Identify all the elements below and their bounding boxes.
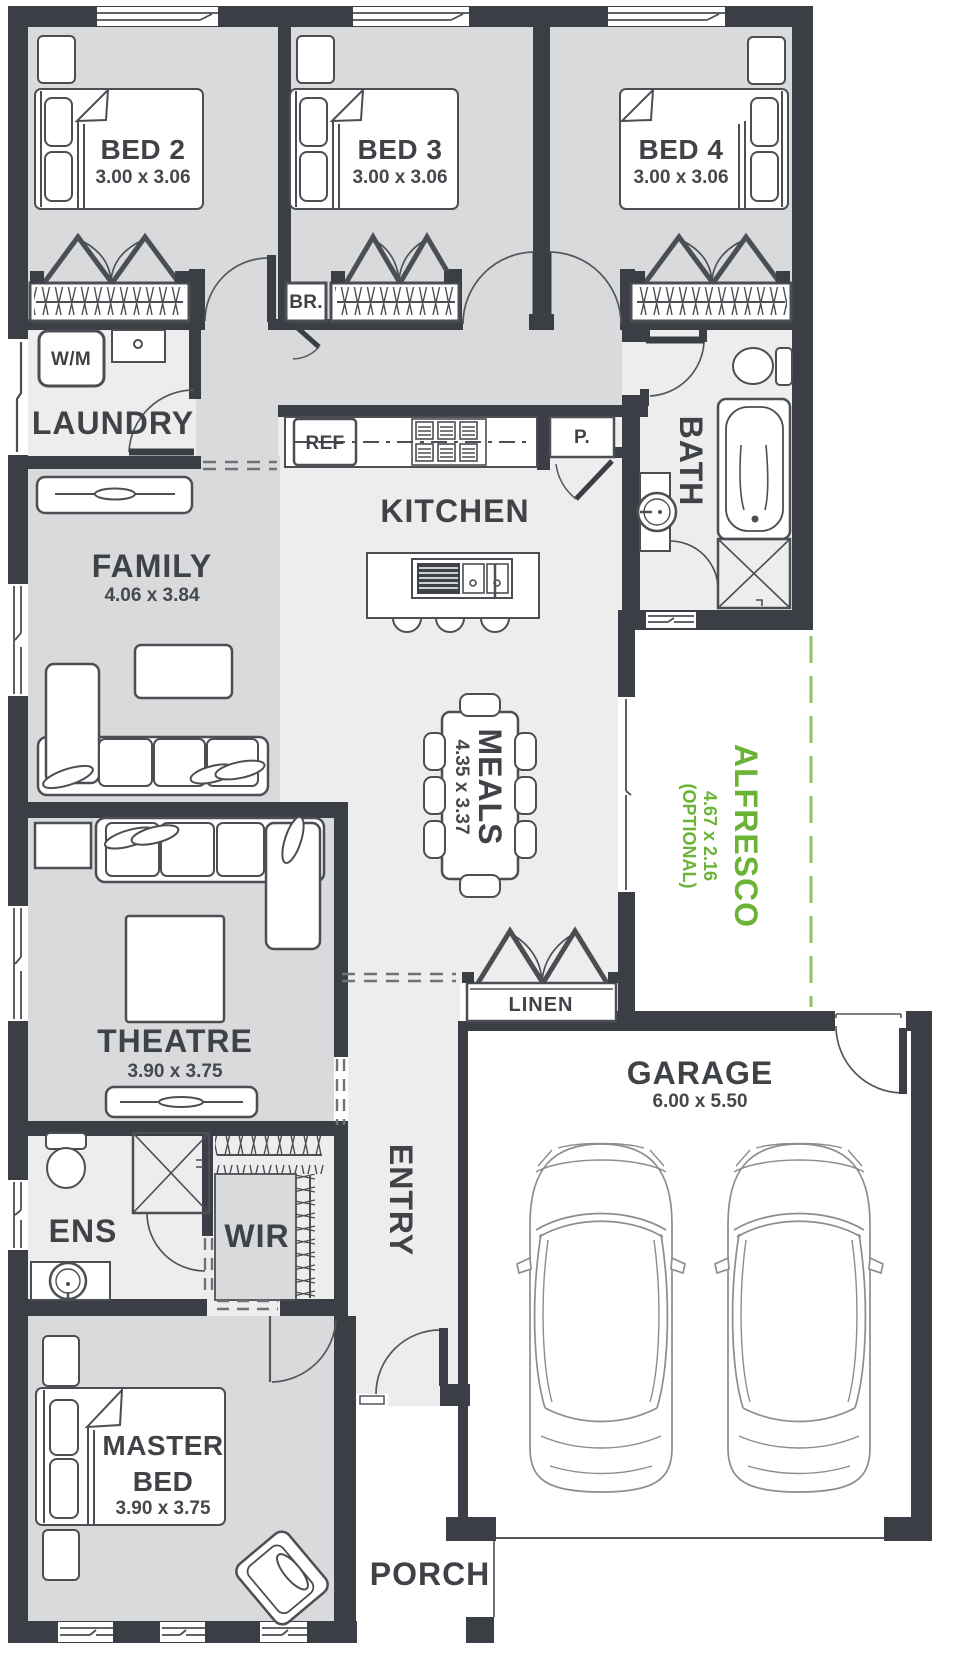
svg-text:BED 3: BED 3 [358, 134, 443, 165]
svg-text:ENS: ENS [49, 1213, 118, 1249]
svg-text:BR.: BR. [289, 292, 323, 313]
svg-text:LAUNDRY: LAUNDRY [32, 405, 194, 441]
svg-text:6.00 x 5.50: 6.00 x 5.50 [652, 1091, 747, 1112]
svg-text:BED 2: BED 2 [101, 134, 186, 165]
svg-text:4.35 x 3.37: 4.35 x 3.37 [451, 739, 472, 834]
svg-text:MEALS: MEALS [472, 729, 508, 846]
svg-text:REF: REF [306, 433, 345, 454]
svg-text:3.00 x 3.06: 3.00 x 3.06 [633, 167, 728, 188]
svg-text:3.00 x 3.06: 3.00 x 3.06 [352, 167, 447, 188]
svg-text:3.90 x 3.75: 3.90 x 3.75 [115, 1498, 211, 1519]
svg-text:PORCH: PORCH [370, 1556, 491, 1592]
svg-text:KITCHEN: KITCHEN [380, 493, 529, 529]
svg-text:ENTRY: ENTRY [383, 1144, 419, 1256]
svg-text:BED: BED [133, 1466, 194, 1497]
svg-text:(OPTIONAL): (OPTIONAL) [679, 784, 699, 889]
svg-text:WIR: WIR [224, 1218, 289, 1254]
svg-text:BED 4: BED 4 [639, 134, 724, 165]
svg-text:BATH: BATH [673, 416, 709, 507]
svg-text:THEATRE: THEATRE [97, 1023, 253, 1059]
svg-text:FAMILY: FAMILY [92, 548, 212, 584]
svg-text:W/M: W/M [51, 349, 91, 370]
svg-text:P.: P. [574, 427, 590, 448]
svg-text:3.90 x 3.75: 3.90 x 3.75 [127, 1061, 223, 1082]
svg-text:4.06 x 3.84: 4.06 x 3.84 [104, 585, 200, 606]
svg-text:4.67 x 2.16: 4.67 x 2.16 [700, 791, 720, 881]
svg-text:GARAGE: GARAGE [627, 1055, 773, 1091]
svg-text:3.00 x 3.06: 3.00 x 3.06 [95, 167, 190, 188]
svg-text:ALFRESCO: ALFRESCO [728, 744, 764, 928]
svg-text:LINEN: LINEN [509, 994, 574, 1016]
svg-text:MASTER: MASTER [102, 1430, 223, 1461]
